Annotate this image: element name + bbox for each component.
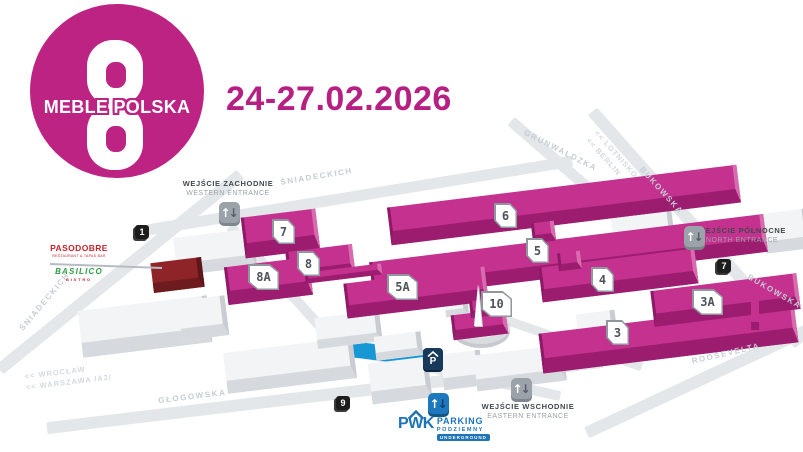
pwk-wordmark: PWK xyxy=(398,410,434,433)
road-marker-1: 1 xyxy=(135,225,149,239)
pwk-caption: PARKING PODZIEMNY UNDERGROUND xyxy=(437,416,490,441)
hall-number: 3A xyxy=(694,291,722,314)
logo-title: MEBLE POLSKA xyxy=(30,97,204,118)
meble-polska-fairgrounds-map: ŚNIADECKICH ŚNIADECKICH GRUNWALDZKA BUKO… xyxy=(0,0,803,452)
parking-badge-icon: P xyxy=(423,348,443,370)
hall-label-3a: 3A xyxy=(692,289,723,315)
west-entrance-gate-icon: ↑↓ xyxy=(219,202,240,223)
hall-number: 7 xyxy=(274,221,294,243)
hall-number: 3 xyxy=(608,322,628,344)
hall-label-5: 5 xyxy=(526,238,549,263)
chain-link-hole xyxy=(106,126,126,152)
underground-word: UNDERGROUND xyxy=(437,434,490,441)
down-arrow-icon: ↓ xyxy=(438,397,448,411)
entrance-name-en: NORTH ENTRANCE xyxy=(692,237,792,244)
pasodobre-label: PASODOBRE xyxy=(50,243,108,253)
hall-label-6: 6 xyxy=(494,203,517,228)
hall-number: 8 xyxy=(299,253,319,275)
direction-wroclaw-warszawa: << WROCŁAW << WARSZAWA /A2/ xyxy=(24,360,113,393)
restaurant-labels: PASODOBRE RESTAURANT & TAPAS BAR BASILIC… xyxy=(40,243,118,282)
hall-number: 6 xyxy=(496,205,516,227)
tower-icon xyxy=(751,294,759,330)
down-arrow-icon: ↓ xyxy=(229,206,239,220)
road-marker-9: 9 xyxy=(336,396,350,410)
restaurant-building xyxy=(150,257,204,293)
entrance-name-en: WESTERN ENTRANCE xyxy=(150,190,306,197)
north-entrance-gate-icon: ↑↓ xyxy=(684,226,705,247)
east-entrance-gate-icon: ↑↓ xyxy=(511,378,532,399)
building xyxy=(178,295,230,340)
meble-polska-logo: MEBLE POLSKA xyxy=(30,4,204,178)
north-entrance-label: WEJŚCIE PÓŁNOCNE NORTH ENTRANCE xyxy=(692,226,792,244)
hall-label-7: 7 xyxy=(272,219,295,244)
parking-word: PARKING xyxy=(437,416,490,426)
basilico-label: BASILICO xyxy=(55,267,103,276)
parking-letter: P xyxy=(430,357,437,367)
hall-number: 4 xyxy=(593,269,613,291)
hall-number: 10 xyxy=(483,293,511,316)
tower-top-icon xyxy=(748,286,760,298)
hall-label-4: 4 xyxy=(591,267,614,292)
pwk-name: PWK xyxy=(398,415,434,433)
hall-number: 5A xyxy=(389,276,417,299)
hall-number: 8A xyxy=(250,266,278,289)
podziemny-word: PODZIEMNY xyxy=(437,427,490,433)
entrance-name-pl: WEJŚCIE ZACHODNIE xyxy=(150,179,306,188)
marker-number: 9 xyxy=(340,398,345,408)
down-arrow-icon: ↓ xyxy=(694,230,704,244)
marker-number: 1 xyxy=(139,227,144,237)
hall-connector xyxy=(557,251,582,272)
fountain-spire xyxy=(474,284,482,326)
west-entrance-label: WEJŚCIE ZACHODNIE WESTERN ENTRANCE xyxy=(150,179,306,197)
event-date: 24-27.02.2026 xyxy=(226,80,452,119)
basilico-subtitle: BISTRO xyxy=(66,277,92,282)
hall-label-3: 3 xyxy=(606,320,629,345)
pasodobre-subtitle: RESTAURANT & TAPAS BAR xyxy=(52,254,105,258)
chain-link-hole xyxy=(106,62,126,88)
road-marker-7: 7 xyxy=(717,259,731,273)
marker-number: 7 xyxy=(721,261,726,271)
hall-label-8: 8 xyxy=(297,251,320,276)
entrance-name-pl: WEJŚCIE PÓŁNOCNE xyxy=(692,226,792,235)
pwk-parking-logo: PWK PARKING PODZIEMNY UNDERGROUND xyxy=(398,410,490,441)
hall-number: 5 xyxy=(528,240,548,262)
down-arrow-icon: ↓ xyxy=(521,382,531,396)
